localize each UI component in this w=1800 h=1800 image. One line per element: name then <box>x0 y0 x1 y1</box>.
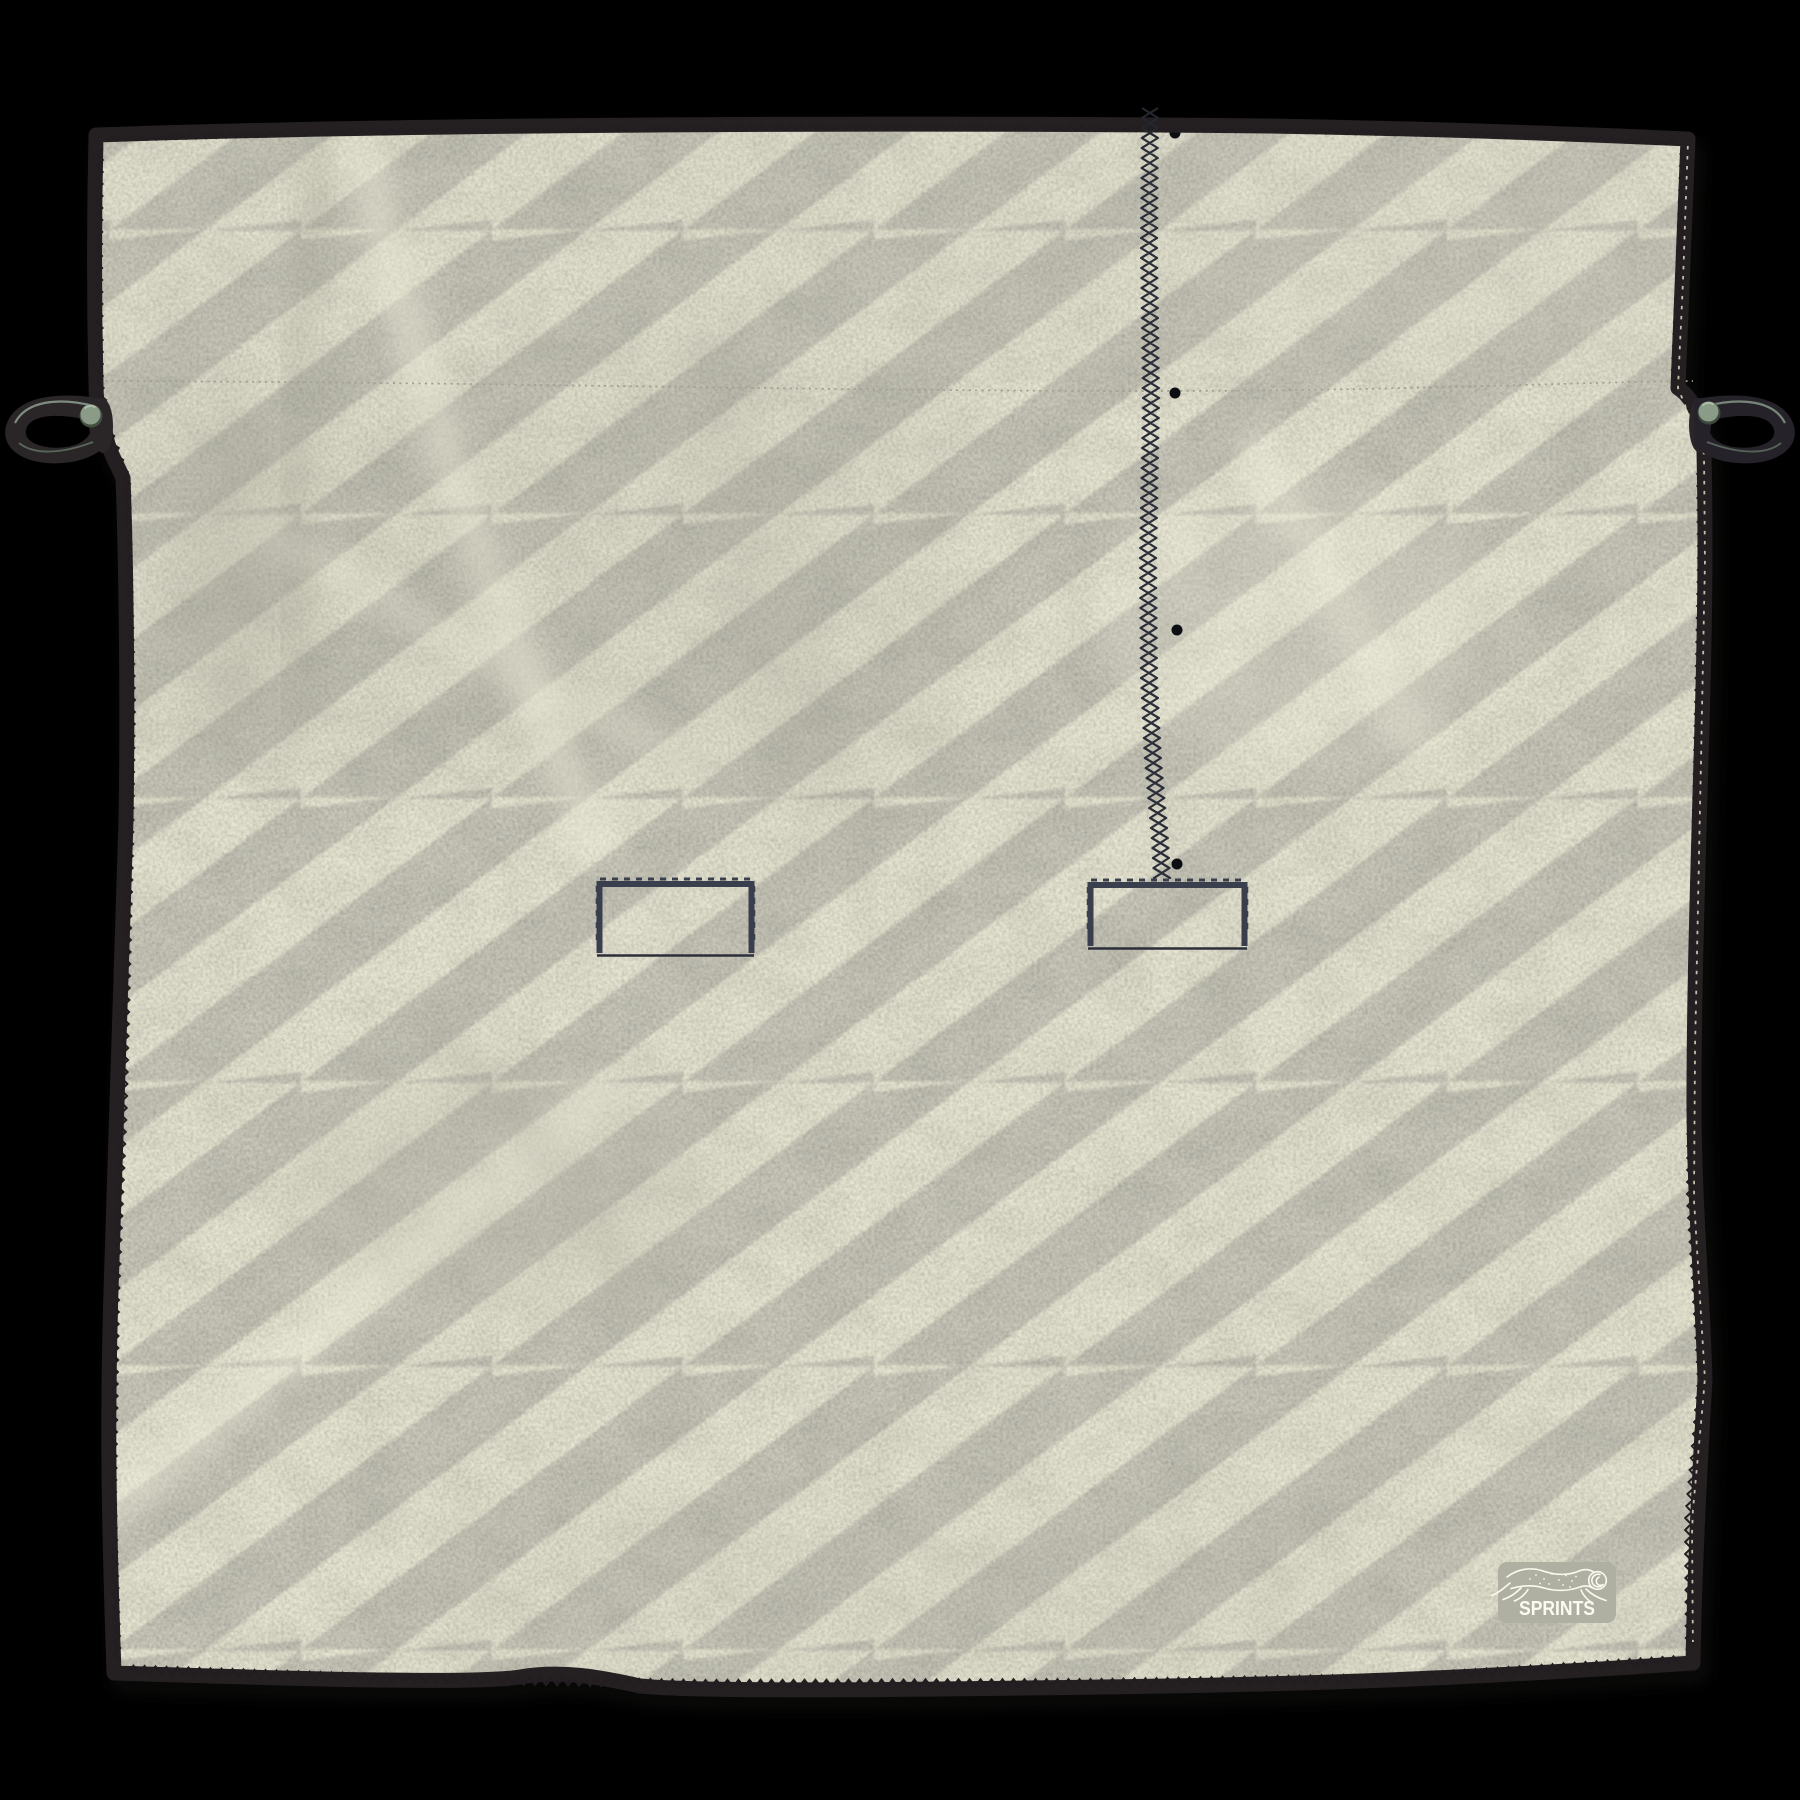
svg-text:SPRINTS: SPRINTS <box>1519 1597 1595 1620</box>
